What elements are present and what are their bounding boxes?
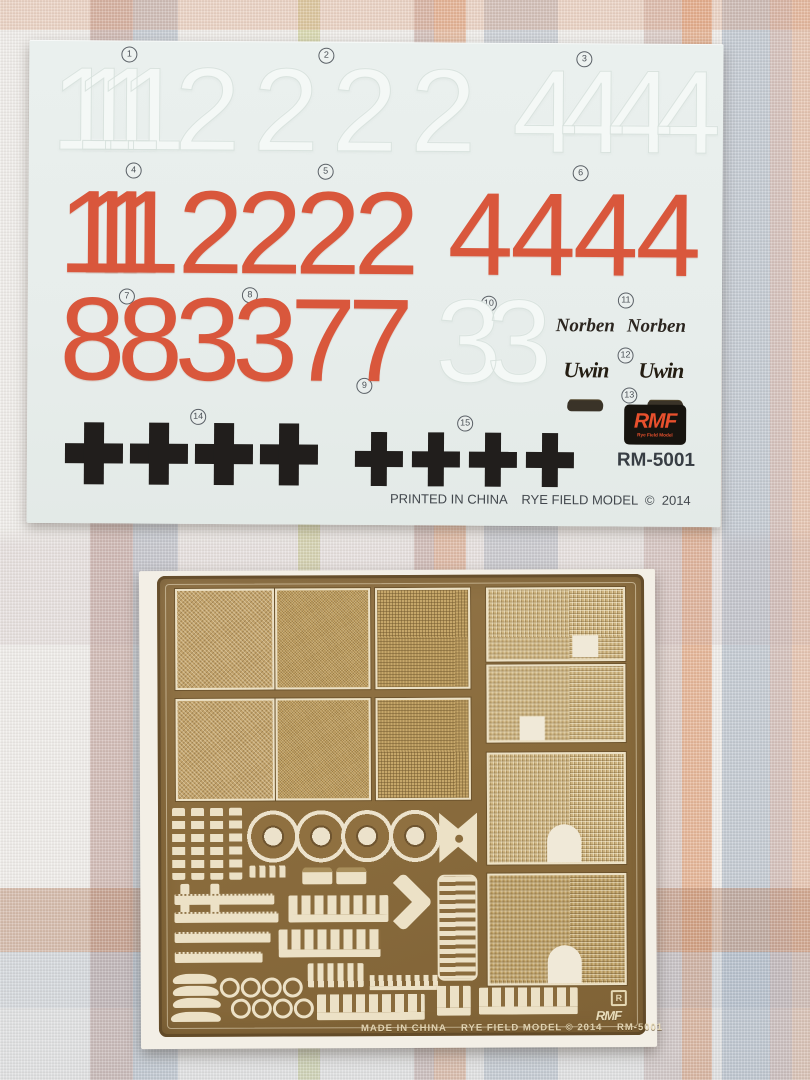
white-digits-4444: 4444 bbox=[512, 53, 703, 172]
pe-small-comb bbox=[249, 865, 289, 877]
white-digits-2222: 2222 bbox=[174, 51, 489, 171]
product-code: RM-5001 bbox=[613, 449, 699, 472]
pe-ring bbox=[252, 999, 272, 1019]
pe-comb-row bbox=[317, 994, 425, 1020]
white-digits-33: 33 bbox=[435, 282, 537, 401]
pe-ring bbox=[241, 978, 261, 998]
registered-mark-box: R bbox=[611, 990, 627, 1006]
pe-brass-fret: R RMF MADE IN CHINA RYE FIELD MODEL © 20… bbox=[157, 574, 646, 1037]
pe-strip-part bbox=[175, 952, 263, 963]
wheel-disc-4 bbox=[388, 809, 442, 863]
wheel-disc-3 bbox=[340, 809, 394, 863]
balkenkreuz-cross-large-1 bbox=[65, 422, 123, 484]
pe-comb-row bbox=[279, 929, 381, 957]
arched-cutout bbox=[547, 824, 581, 864]
pe-comb-row bbox=[479, 987, 578, 1014]
balkenkreuz-cross-small-2 bbox=[412, 432, 460, 486]
pe-comb-row bbox=[288, 895, 388, 922]
pe-strip-part bbox=[175, 932, 271, 943]
pe-ring bbox=[231, 999, 251, 1019]
balkenkreuz-cross-small-4 bbox=[526, 433, 574, 487]
pe-ring bbox=[294, 998, 314, 1018]
pe-clamp-strip bbox=[191, 808, 204, 880]
callout-13: 13 bbox=[621, 388, 637, 404]
mesh-panel-right-1 bbox=[486, 587, 625, 662]
pe-ring bbox=[262, 978, 282, 998]
pe-ring bbox=[220, 978, 240, 998]
mesh-panel-3 bbox=[375, 588, 470, 689]
etched-rmf-logo: RMF bbox=[596, 1008, 621, 1023]
pe-clamp-strip bbox=[210, 808, 223, 880]
pe-part-cluster bbox=[308, 963, 364, 987]
pe-strip-part bbox=[174, 912, 278, 923]
mesh-panel-right-4 bbox=[487, 873, 626, 986]
wheel-disc-1 bbox=[246, 809, 300, 863]
rmf-logo-subtext: Rye Field Model bbox=[637, 433, 673, 438]
balkenkreuz-cross-large-2 bbox=[130, 423, 188, 485]
rmf-logo-text: RMF bbox=[634, 411, 677, 431]
uwin-marking-2: Uwin bbox=[638, 358, 683, 384]
norben-marking-1: Norben bbox=[556, 315, 615, 337]
balkenkreuz-cross-small-1 bbox=[355, 432, 403, 486]
callout-15: 15 bbox=[457, 416, 473, 432]
small-emblem-decal-1 bbox=[566, 400, 604, 411]
balkenkreuz-cross-large-3 bbox=[195, 423, 253, 485]
pe-backing-card: R RMF MADE IN CHINA RYE FIELD MODEL © 20… bbox=[139, 569, 657, 1049]
pe-bowtie-part bbox=[439, 813, 477, 863]
mesh-panel-right-3 bbox=[487, 752, 626, 865]
pe-fender-strip bbox=[171, 1012, 221, 1022]
decal-footer-text: PRINTED IN CHINA RYE FIELD MODEL © 2014 bbox=[390, 491, 691, 508]
decal-sheet: 1 2 3 4 5 6 7 8 9 10 11 12 13 14 15 1111… bbox=[27, 40, 724, 527]
mesh-panel-5 bbox=[276, 698, 371, 800]
pe-block-part bbox=[336, 867, 366, 884]
uwin-marking-1: Uwin bbox=[563, 357, 608, 383]
red-digits-883377: 883377 bbox=[59, 280, 405, 400]
mesh-panel-2 bbox=[275, 588, 370, 689]
pe-ring bbox=[273, 998, 293, 1018]
pe-fender-strip bbox=[173, 974, 217, 984]
pe-comb-small bbox=[437, 986, 471, 1016]
uwin-markings: Uwin Uwin bbox=[563, 357, 703, 384]
mesh-panel-right-2 bbox=[486, 664, 625, 743]
balkenkreuz-cross-small-3 bbox=[469, 433, 517, 487]
pe-ring bbox=[283, 977, 303, 997]
pe-ribbed-ladder-part bbox=[437, 875, 477, 981]
pe-footer-text: MADE IN CHINA RYE FIELD MODEL © 2014 RM-… bbox=[361, 1022, 663, 1034]
photo-canvas: { "colors": { "decal_background": "#e8ee… bbox=[0, 0, 810, 1080]
pe-zigzag-strip bbox=[370, 975, 440, 990]
pe-fender-strip bbox=[173, 998, 221, 1008]
panel-cutout bbox=[520, 716, 545, 742]
white-digits-1111: 1111 bbox=[51, 50, 152, 169]
balkenkreuz-cross-large-4 bbox=[260, 423, 318, 485]
norben-marking-2: Norben bbox=[627, 316, 686, 338]
mesh-panel-6 bbox=[376, 698, 471, 800]
norben-markings: Norben Norben bbox=[556, 315, 706, 338]
mesh-panel-1 bbox=[175, 589, 274, 690]
pe-strip-part bbox=[174, 894, 274, 905]
pe-clamp-strip bbox=[229, 808, 242, 880]
mesh-panel-4 bbox=[176, 699, 275, 801]
pe-fender-strip bbox=[173, 986, 219, 996]
pe-block-part bbox=[302, 867, 332, 884]
panel-cutout bbox=[572, 635, 598, 657]
rmf-logo: RMF Rye Field Model bbox=[624, 405, 686, 445]
arched-cutout bbox=[548, 945, 582, 985]
decal-row-white-numbers: 1111 2222 4444 bbox=[51, 50, 704, 172]
pe-clamp-strip bbox=[172, 808, 185, 880]
